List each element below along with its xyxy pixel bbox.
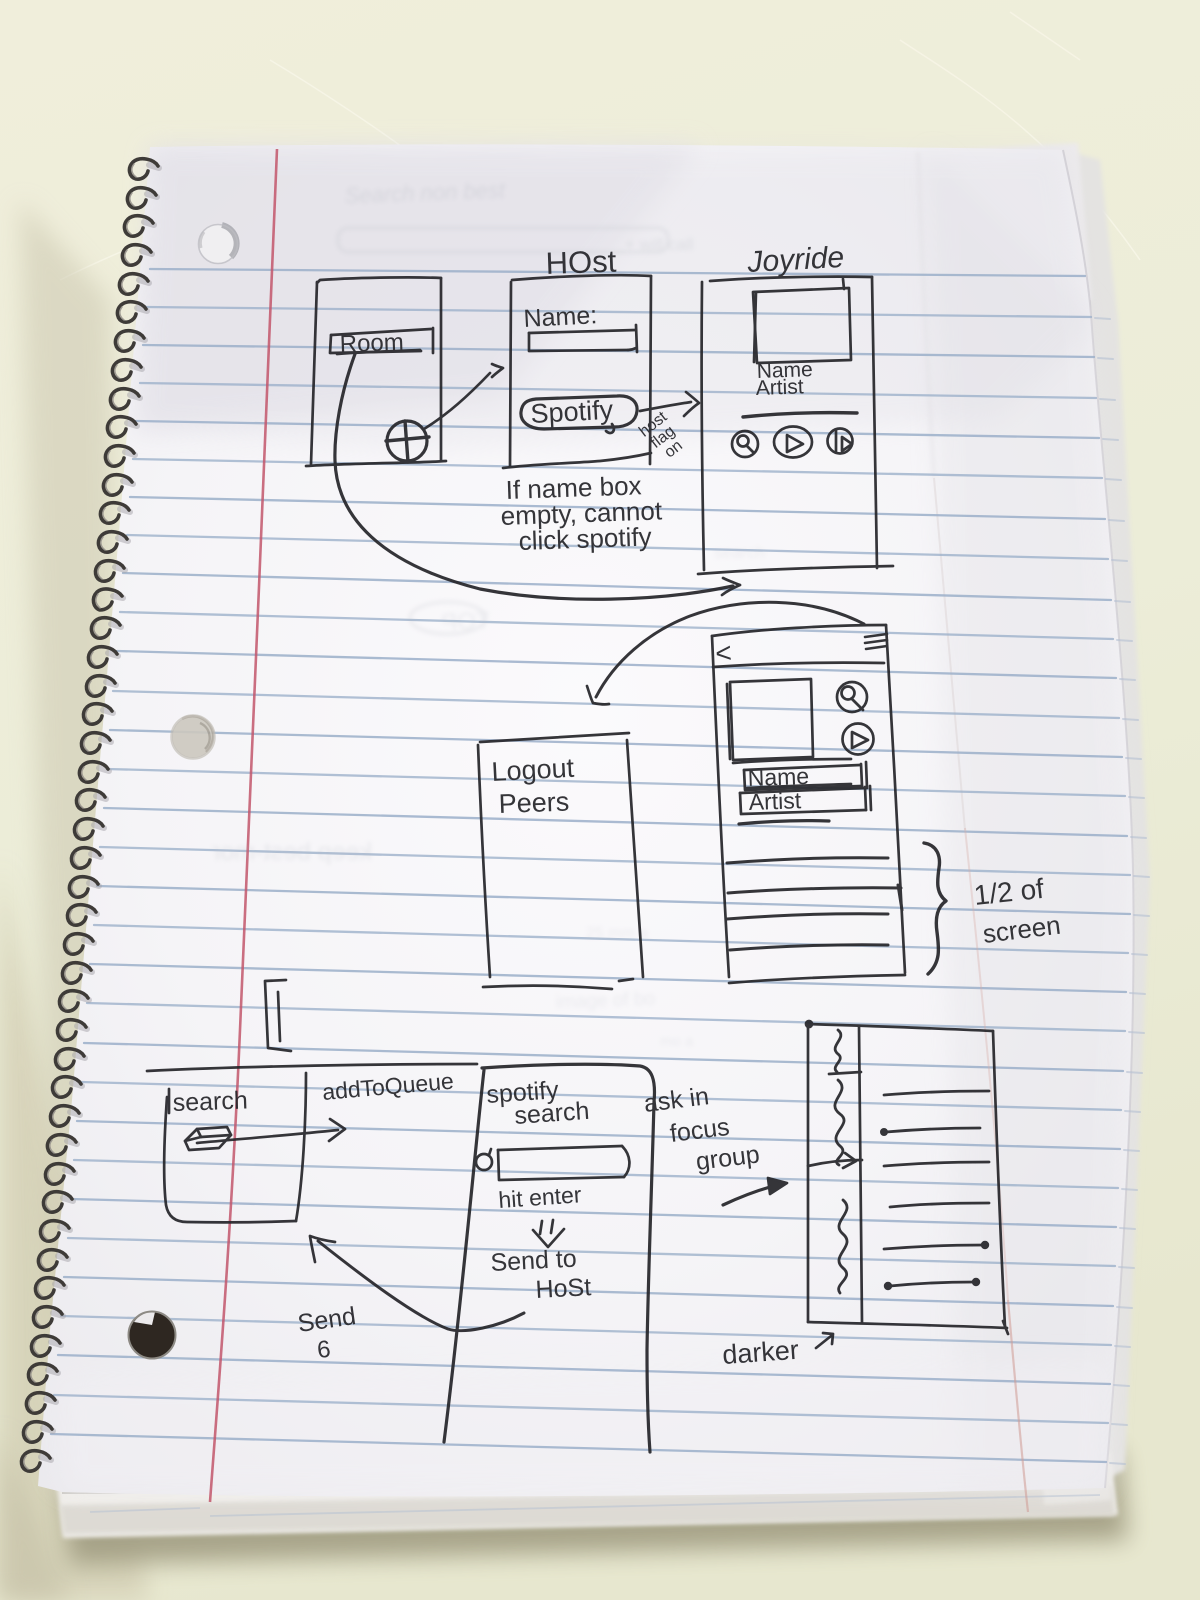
svg-text:search: search [172,1086,248,1117]
svg-text:search: search [513,1097,590,1130]
svg-text:Artist: Artist [748,787,802,815]
svg-text:Logout: Logout [491,753,576,787]
svg-text:Room: Room [339,329,404,358]
svg-text:Spotify: Spotify [530,395,614,429]
svg-text:darker: darker [721,1335,799,1370]
svg-text:Artist: Artist [755,375,804,400]
svg-text:click spotify: click spotify [518,521,652,556]
svg-text:Peers: Peers [498,787,570,819]
svg-text:image of bo: image of bo [555,989,655,1013]
svg-text:HoSt: HoSt [535,1273,592,1304]
svg-text:keep best-mor: keep best-mor [212,838,372,866]
svg-text:Name:: Name: [523,301,598,333]
svg-text:+ will call: + will call [625,235,694,254]
svg-text:Joyride: Joyride [746,241,845,279]
svg-text:mo a: mo a [660,1033,694,1050]
svg-text:<: < [714,637,732,669]
svg-text:Send to: Send to [490,1245,578,1277]
svg-text:6: 6 [316,1336,332,1364]
svg-text:search: search [714,543,765,562]
